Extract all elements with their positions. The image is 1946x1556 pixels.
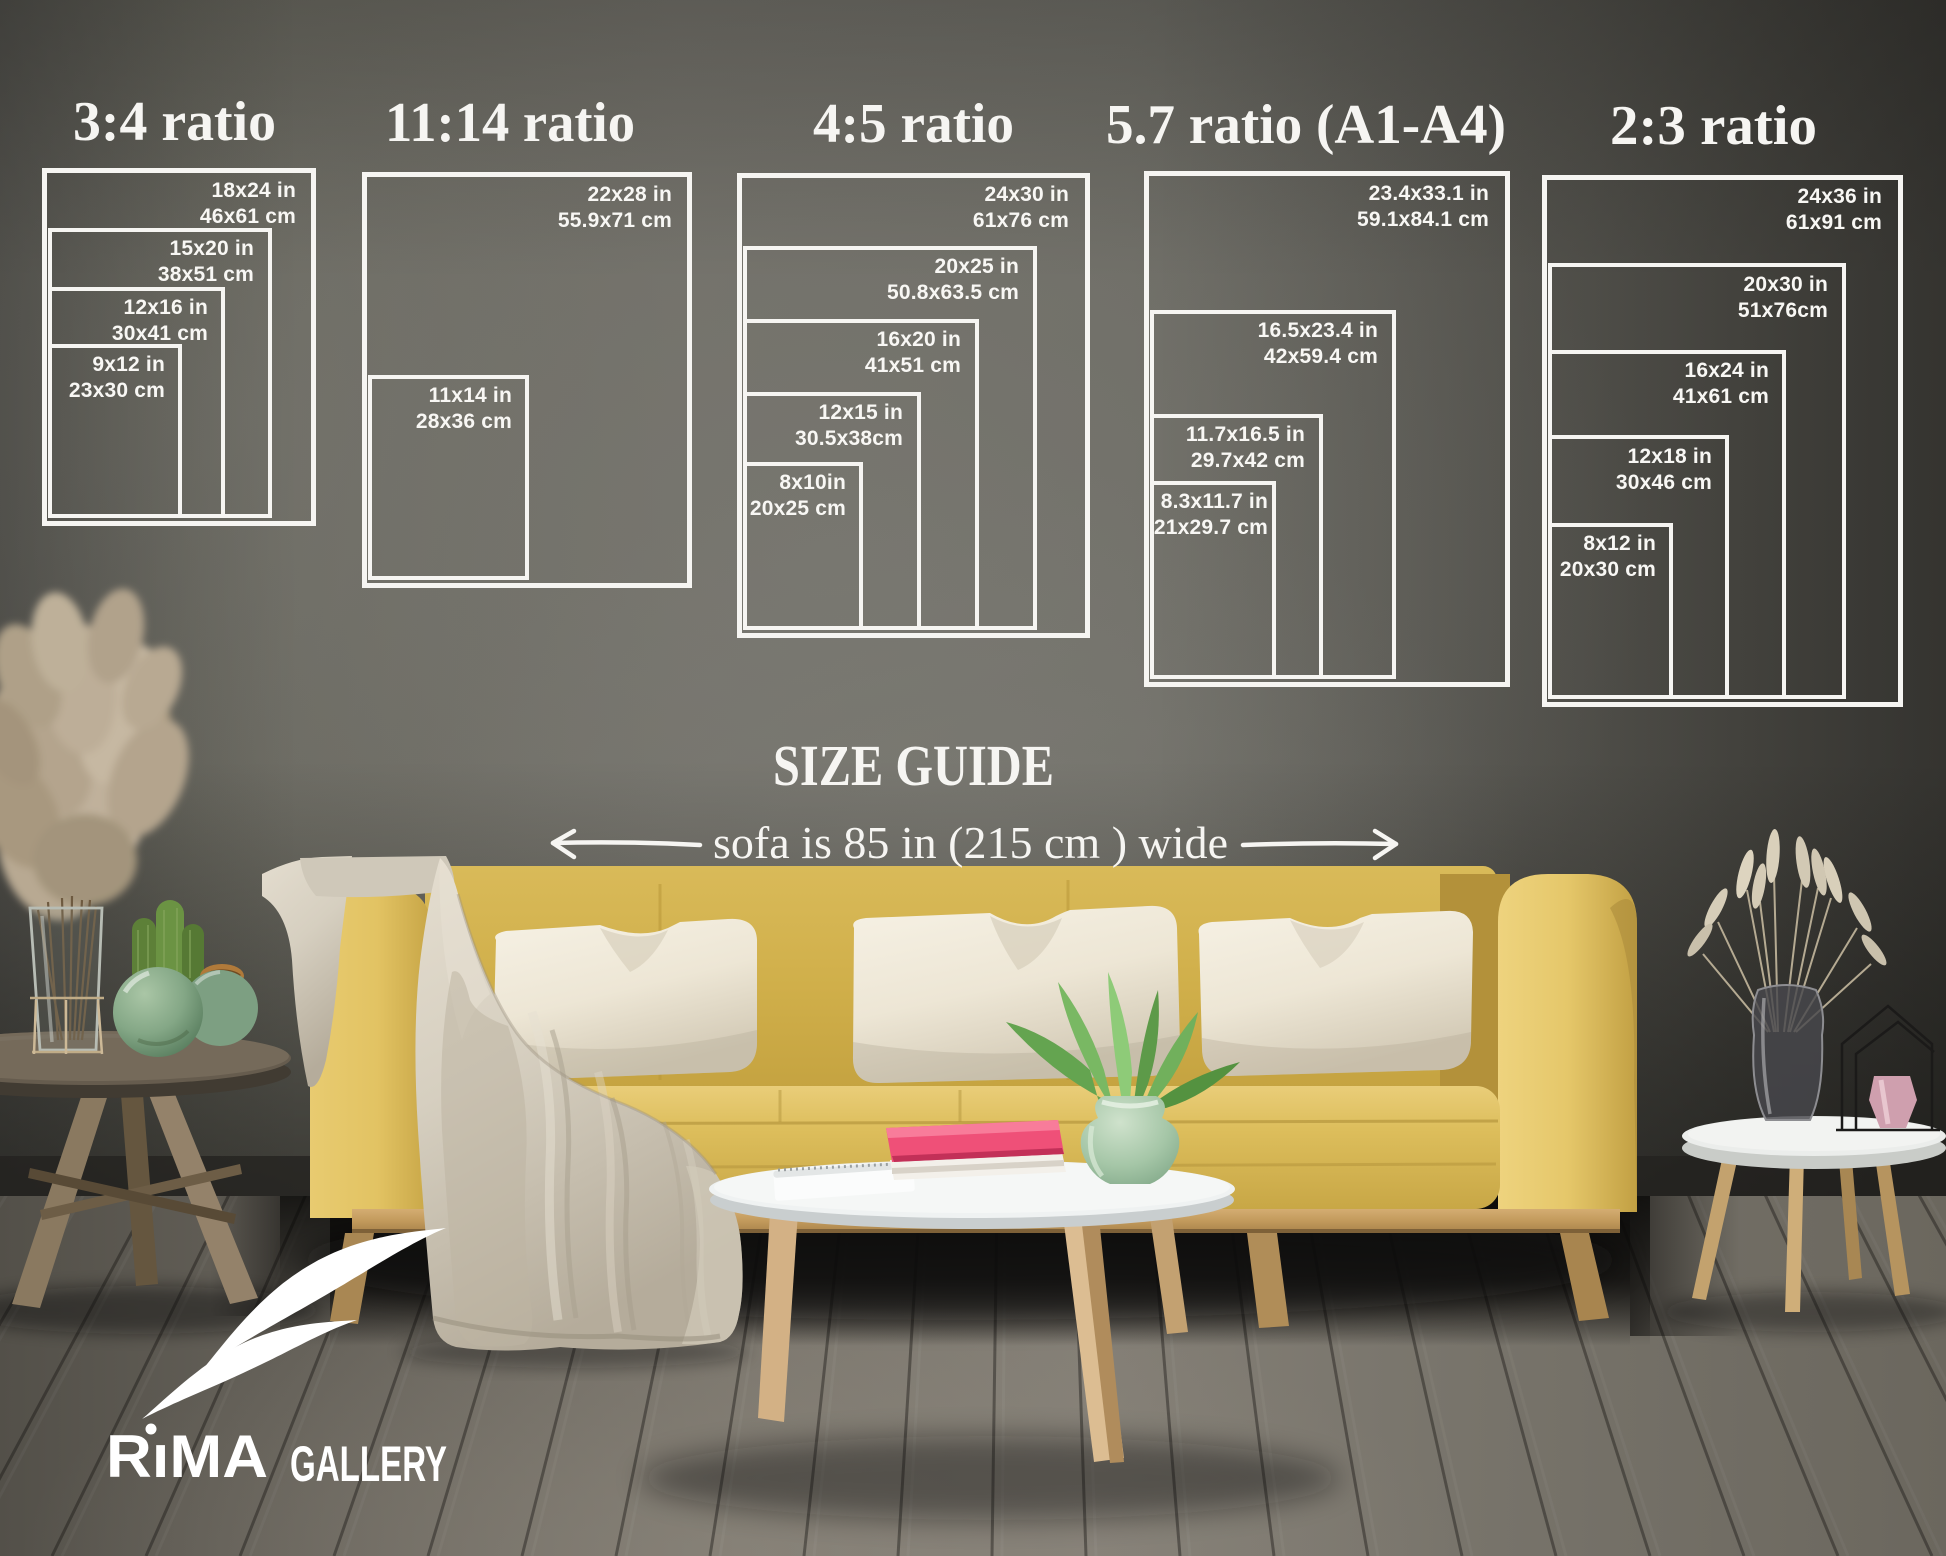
svg-text:RıMA: RıMA <box>106 1423 268 1490</box>
svg-text:5.7 ratio (A1-A4): 5.7 ratio (A1-A4) <box>1106 94 1506 156</box>
svg-text:11:14 ratio: 11:14 ratio <box>385 92 635 154</box>
svg-text:4:5 ratio: 4:5 ratio <box>813 93 1014 155</box>
svg-text:GALLERY: GALLERY <box>290 1436 447 1492</box>
svg-text:sofa is 85 in (215 cm ) wide: sofa is 85 in (215 cm ) wide <box>713 817 1228 868</box>
svg-text:SIZE GUIDE: SIZE GUIDE <box>773 733 1054 798</box>
svg-text:2:3 ratio: 2:3 ratio <box>1610 95 1817 157</box>
svg-text:3:4 ratio: 3:4 ratio <box>73 91 276 153</box>
